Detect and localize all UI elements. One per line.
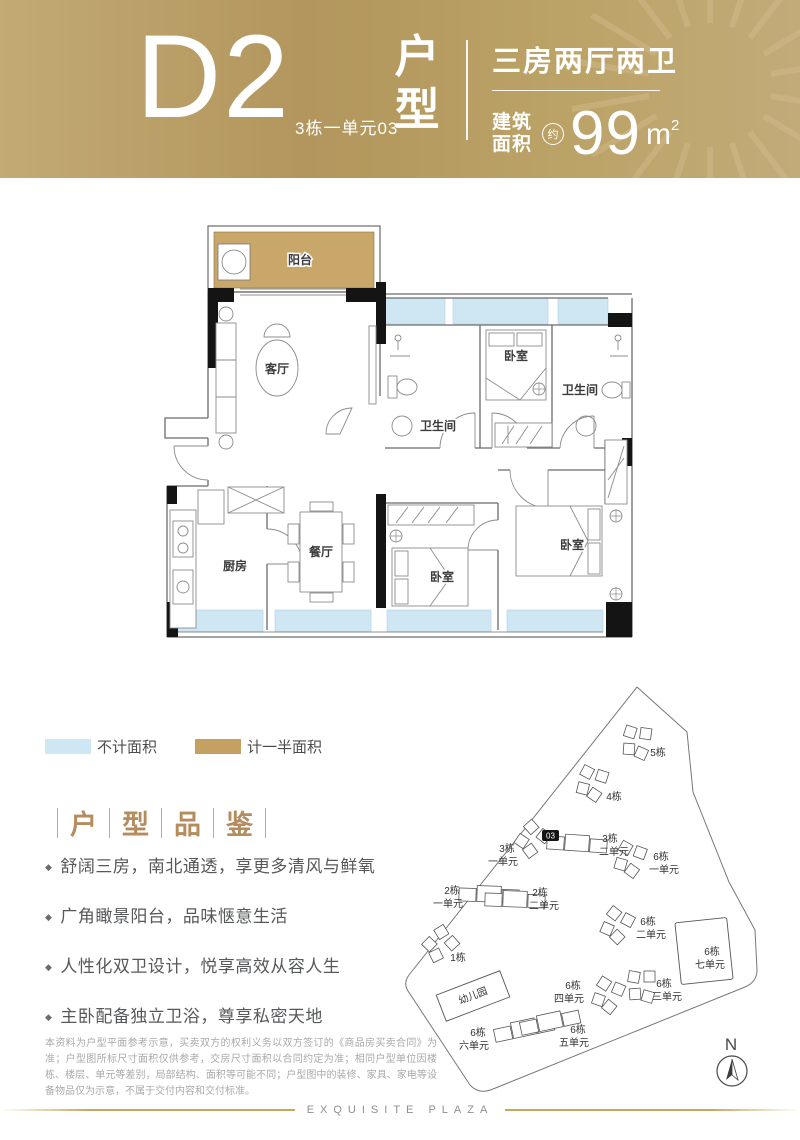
room-label-bath2: 卫生间	[562, 382, 598, 397]
svg-text:1栋: 1栋	[450, 951, 466, 964]
selling-list: ◆舒阔三房，南北通透，享更多清风与鲜氧 ◆广角瞰景阳台，品味惬意生活 ◆人性化双…	[45, 852, 405, 1052]
selling-item: ◆舒阔三房，南北通透，享更多清风与鲜氧	[45, 852, 405, 877]
compass-icon: N	[717, 1035, 747, 1086]
svg-text:6栋: 6栋	[704, 945, 720, 958]
svg-text:五单元: 五单元	[559, 1037, 589, 1049]
selling-item: ◆主卧配备独立卫浴，尊享私密天地	[45, 1002, 405, 1027]
diamond-bullet-icon: ◆	[45, 962, 52, 973]
svg-text:6栋: 6栋	[470, 1026, 486, 1039]
layout-description: 三房两厅两卫	[492, 38, 702, 80]
svg-text:6栋: 6栋	[565, 979, 581, 992]
diamond-bullet-icon: ◆	[45, 1012, 52, 1023]
svg-text:四单元: 四单元	[554, 993, 584, 1005]
svg-text:03: 03	[546, 832, 555, 841]
svg-text:一单元: 一单元	[649, 864, 679, 876]
svg-text:二单元: 二单元	[636, 929, 666, 941]
area-value: 99	[570, 103, 641, 165]
header-right-block: 三房两厅两卫 建筑 面积 约 99 m2	[492, 38, 702, 165]
brand-name: EXQUISITE PLAZA	[307, 1104, 494, 1116]
disclaimer-text: 本资料为户型平面参考示意，买卖双方的权利义务以双方签订的《商品房买卖合同》为准；…	[45, 1036, 437, 1100]
selling-item: ◆人性化双卫设计，悦享高效从容人生	[45, 952, 405, 977]
legend: 不计面积 计一半面积	[45, 736, 322, 757]
selling-item: ◆广角瞰景阳台，品味惬意生活	[45, 902, 405, 927]
legend-label-no-area: 不计面积	[97, 736, 157, 757]
svg-text:一单元: 一单元	[488, 856, 518, 868]
room-label-living: 客厅	[264, 361, 289, 376]
diamond-bullet-icon: ◆	[45, 912, 52, 923]
floorplan-drawing: 阳台 客厅 卫生间 卧室 卫生间 厨房 餐厅 卧室 卧室	[140, 218, 640, 653]
svg-text:三单元: 三单元	[652, 991, 682, 1003]
vertical-title-char2: 型	[393, 83, 441, 136]
footer-line-right	[505, 1109, 800, 1111]
legend-swatch-half-area	[195, 739, 241, 754]
footer-line-left	[0, 1109, 295, 1111]
unit-code: D2	[136, 18, 291, 136]
legend-swatch-no-area	[45, 739, 91, 754]
svg-text:4栋: 4栋	[606, 790, 622, 803]
approx-badge: 约	[542, 123, 564, 145]
header-underline	[492, 90, 660, 91]
svg-text:N: N	[725, 1035, 737, 1054]
room-label-bed-master: 卧室	[560, 537, 584, 552]
header-divider	[466, 40, 468, 140]
flyer-page: D2 3栋一单元03 户 型 三房两厅两卫 建筑 面积 约 99 m2	[0, 0, 800, 1140]
svg-text:6栋: 6栋	[656, 977, 672, 990]
svg-text:6栋: 6栋	[640, 915, 656, 928]
unit-sub-label: 3栋一单元03	[295, 114, 398, 139]
vertical-title-char1: 户	[393, 30, 441, 83]
svg-text:2栋: 2栋	[444, 884, 460, 897]
svg-text:3栋: 3栋	[499, 842, 515, 855]
room-label-kitchen: 厨房	[223, 558, 247, 573]
svg-text:3栋: 3栋	[602, 832, 618, 845]
selling-title: 户 型 品 鉴	[45, 803, 278, 842]
svg-text:2栋: 2栋	[532, 886, 548, 899]
svg-text:二单元: 二单元	[529, 900, 559, 912]
area-unit: m2	[646, 117, 679, 152]
svg-text:六单元: 六单元	[459, 1040, 489, 1052]
svg-text:二单元: 二单元	[599, 846, 629, 858]
vertical-title: 户 型	[393, 30, 441, 136]
area-label: 建筑 面积	[492, 112, 532, 156]
svg-text:6栋: 6栋	[570, 1023, 586, 1036]
room-label-bath1: 卫生间	[420, 418, 456, 433]
area-row: 建筑 面积 约 99 m2	[492, 103, 702, 165]
legend-label-half-area: 计一半面积	[247, 736, 322, 757]
svg-text:6栋: 6栋	[653, 850, 669, 863]
room-label-balcony: 阳台	[288, 252, 312, 267]
room-label-bed-top: 卧室	[504, 348, 528, 363]
unit-03-marker: 03	[542, 830, 559, 841]
sitemap: 03 5栋 4栋 3栋 一单元 3栋 二单元 6栋 一单元 2栋 一单元 2栋 …	[398, 678, 773, 1103]
diamond-bullet-icon: ◆	[45, 862, 52, 873]
room-label-bed-mid: 卧室	[430, 569, 454, 584]
furniture	[170, 307, 630, 628]
svg-text:七单元: 七单元	[695, 959, 725, 971]
svg-text:一单元: 一单元	[433, 898, 463, 910]
footer: EXQUISITE PLAZA	[0, 1104, 800, 1116]
svg-text:5栋: 5栋	[650, 746, 666, 759]
header-banner: D2 3栋一单元03 户 型 三房两厅两卫 建筑 面积 约 99 m2	[0, 0, 800, 178]
room-label-dining: 餐厅	[309, 544, 333, 559]
